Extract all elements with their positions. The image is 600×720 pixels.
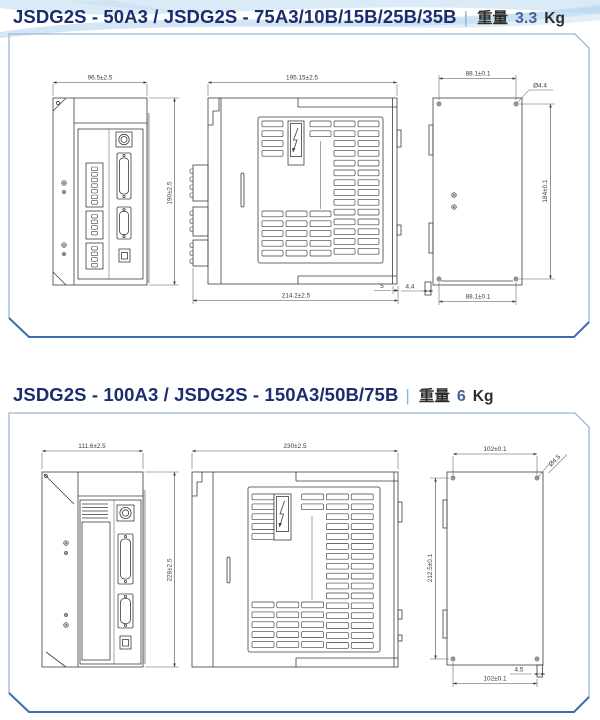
warning-label — [288, 121, 304, 165]
rail-tab — [443, 500, 447, 528]
dim-arrowhead — [395, 299, 399, 302]
top-vent-lines — [82, 504, 108, 518]
knob-icon — [119, 134, 129, 144]
dim-arrowhead — [439, 300, 443, 303]
dim-front-width: 111.6±2.5 — [78, 443, 106, 450]
dim-side-width: 195.15±2.5 — [286, 75, 318, 82]
dim-front-height: 190±2.5 — [167, 181, 174, 204]
dim-arrowhead — [208, 81, 212, 84]
dim-arrowhead — [534, 453, 538, 456]
dim-side-width: 230±2.5 — [283, 443, 306, 450]
dim-arrowhead — [549, 104, 552, 108]
dim-arrowhead — [53, 81, 57, 84]
mount-hole-icon — [451, 476, 455, 480]
dim-side-offset: 5 — [380, 283, 384, 290]
dim-back-top-width: 88.1±0.1 — [466, 71, 491, 78]
dim-arrowhead — [513, 77, 517, 80]
side-view: 195.15±2.5 214.2±2.5 5 — [190, 75, 401, 305]
dim-back-height: 212.5±0.1 — [427, 553, 434, 582]
mount-hole-icon — [437, 102, 441, 106]
dim-arrowhead — [395, 450, 399, 453]
rail-tab — [429, 223, 433, 253]
front-view: 111.6±2.5 228±2.5 — [42, 443, 179, 667]
dim-arrowhead — [42, 450, 46, 453]
dim-arrowhead — [173, 472, 176, 476]
rear-tab — [397, 225, 401, 235]
rear-tab — [397, 130, 401, 147]
screw-icon — [64, 551, 67, 554]
dim-arrowhead — [439, 77, 443, 80]
screw-icon — [64, 613, 67, 616]
panel-frame-bottom-accent — [9, 693, 589, 712]
back-view: 88.1±0.1 Ø4.4 184±0.1 88.1±0.1 4.4 — [401, 71, 555, 306]
handle-slot — [241, 173, 244, 207]
dim-back-height: 184±0.1 — [542, 179, 549, 202]
dim-arrowhead — [542, 673, 546, 676]
dim-arrowhead — [140, 450, 144, 453]
dim-arrowhead — [534, 673, 538, 676]
drawing-panel-1-svg: 96.5±2.5 190±2.5 — [8, 33, 590, 339]
dim-back-hole: Ø4.4 — [533, 83, 547, 90]
mount-hole-icon — [535, 476, 539, 480]
mount-hole-icon — [451, 657, 455, 661]
bottom-tab — [425, 282, 431, 295]
screw-icon — [452, 205, 457, 210]
weight-value: 3.3 — [515, 10, 537, 28]
rail-tab — [443, 610, 447, 638]
section-1-title: JSDG2S - 50A3 / JSDG2S - 75A3/10B/15B/25… — [13, 6, 565, 28]
weight-label: 重量 — [477, 6, 508, 28]
back-view: 102±0.1 Ø4.5 212.5±0.1 102±0.1 4.5 — [427, 446, 567, 687]
rear-tab — [398, 502, 402, 522]
title-divider: | — [464, 8, 468, 28]
dim-front-width: 96.5±2.5 — [88, 75, 113, 82]
page: { "colors": { "title_text": "#1c2d6e", "… — [0, 0, 600, 720]
edge-shadow — [148, 113, 150, 283]
mount-hole-icon — [437, 277, 441, 281]
blank-cover — [82, 522, 110, 660]
usb-port — [119, 249, 130, 262]
dim-arrowhead — [549, 276, 552, 280]
side-view: 230±2.5 — [192, 443, 402, 667]
rear-tab — [398, 635, 402, 641]
drawing-panel-1: 96.5±2.5 190±2.5 — [8, 33, 590, 339]
dim-back-bottom-width: 88.1±0.1 — [466, 294, 491, 301]
rail-tab — [429, 125, 433, 155]
weight-label: 重量 — [419, 384, 450, 406]
dim-arrowhead — [173, 664, 176, 668]
screw-icon — [62, 190, 65, 193]
dim-side-depth: 214.2±2.5 — [282, 293, 311, 300]
connector-column — [116, 132, 132, 262]
front-view: 96.5±2.5 190±2.5 — [53, 75, 179, 286]
warning-label — [274, 494, 291, 540]
screw-icon — [62, 243, 67, 248]
panel-frame-bottom-accent — [9, 318, 589, 337]
knob-icon — [120, 507, 131, 518]
title-divider: | — [405, 386, 409, 406]
dim-arrowhead — [193, 299, 197, 302]
model-names: JSDG2S - 50A3 / JSDG2S - 75A3/10B/15B/25… — [13, 6, 457, 28]
dim-front-height: 228±2.5 — [167, 558, 174, 581]
screw-icon — [62, 252, 65, 255]
connector-column — [117, 505, 134, 649]
weight-value: 6 — [457, 388, 466, 406]
side-connector-blocks — [190, 165, 208, 266]
dim-arrowhead — [394, 81, 398, 84]
dim-arrowhead — [434, 478, 437, 482]
dim-arrowhead — [192, 450, 196, 453]
dim-arrowhead — [534, 682, 538, 685]
rear-tab — [398, 610, 402, 619]
mount-hole-icon — [514, 277, 518, 281]
dim-arrowhead — [173, 98, 176, 102]
dim-back-bottom-width: 102±0.1 — [483, 676, 506, 683]
dim-back-hole-group: Ø4.5 — [543, 449, 567, 473]
dim-arrowhead — [513, 300, 517, 303]
dim-arrowhead — [453, 682, 457, 685]
usb-port — [120, 636, 131, 649]
screw-icon — [64, 541, 69, 546]
mount-hole-icon — [535, 657, 539, 661]
edge-shadow — [144, 490, 146, 664]
dim-arrowhead — [434, 656, 437, 660]
weight-unit: Kg — [473, 388, 494, 406]
drawing-panel-2-svg: 111.6±2.5 228±2.5 — [8, 412, 590, 714]
screw-icon — [452, 193, 457, 198]
screw-icon — [62, 181, 67, 186]
section-2-title: JSDG2S - 100A3 / JSDG2S - 150A3/50B/75B … — [13, 384, 493, 406]
handle-slot — [227, 557, 230, 583]
drawing-panel-2: 111.6±2.5 228±2.5 — [8, 412, 590, 714]
dim-back-top-width: 102±0.1 — [483, 446, 506, 453]
dim-arrowhead — [453, 453, 457, 456]
dim-arrowhead — [173, 282, 176, 286]
front-mount-hole — [56, 101, 59, 104]
terminal-blocks — [86, 163, 103, 269]
mount-hole-icon — [514, 102, 518, 106]
vent-grid — [248, 487, 380, 652]
screw-icon — [64, 623, 69, 628]
weight-unit: Kg — [544, 10, 565, 28]
dim-arrowhead — [144, 81, 148, 84]
dim-back-tab: 4.5 — [515, 667, 524, 674]
dim-back-tab: 4.4 — [406, 284, 415, 291]
vent-grid — [258, 117, 383, 263]
model-names: JSDG2S - 100A3 / JSDG2S - 150A3/50B/75B — [13, 384, 398, 406]
